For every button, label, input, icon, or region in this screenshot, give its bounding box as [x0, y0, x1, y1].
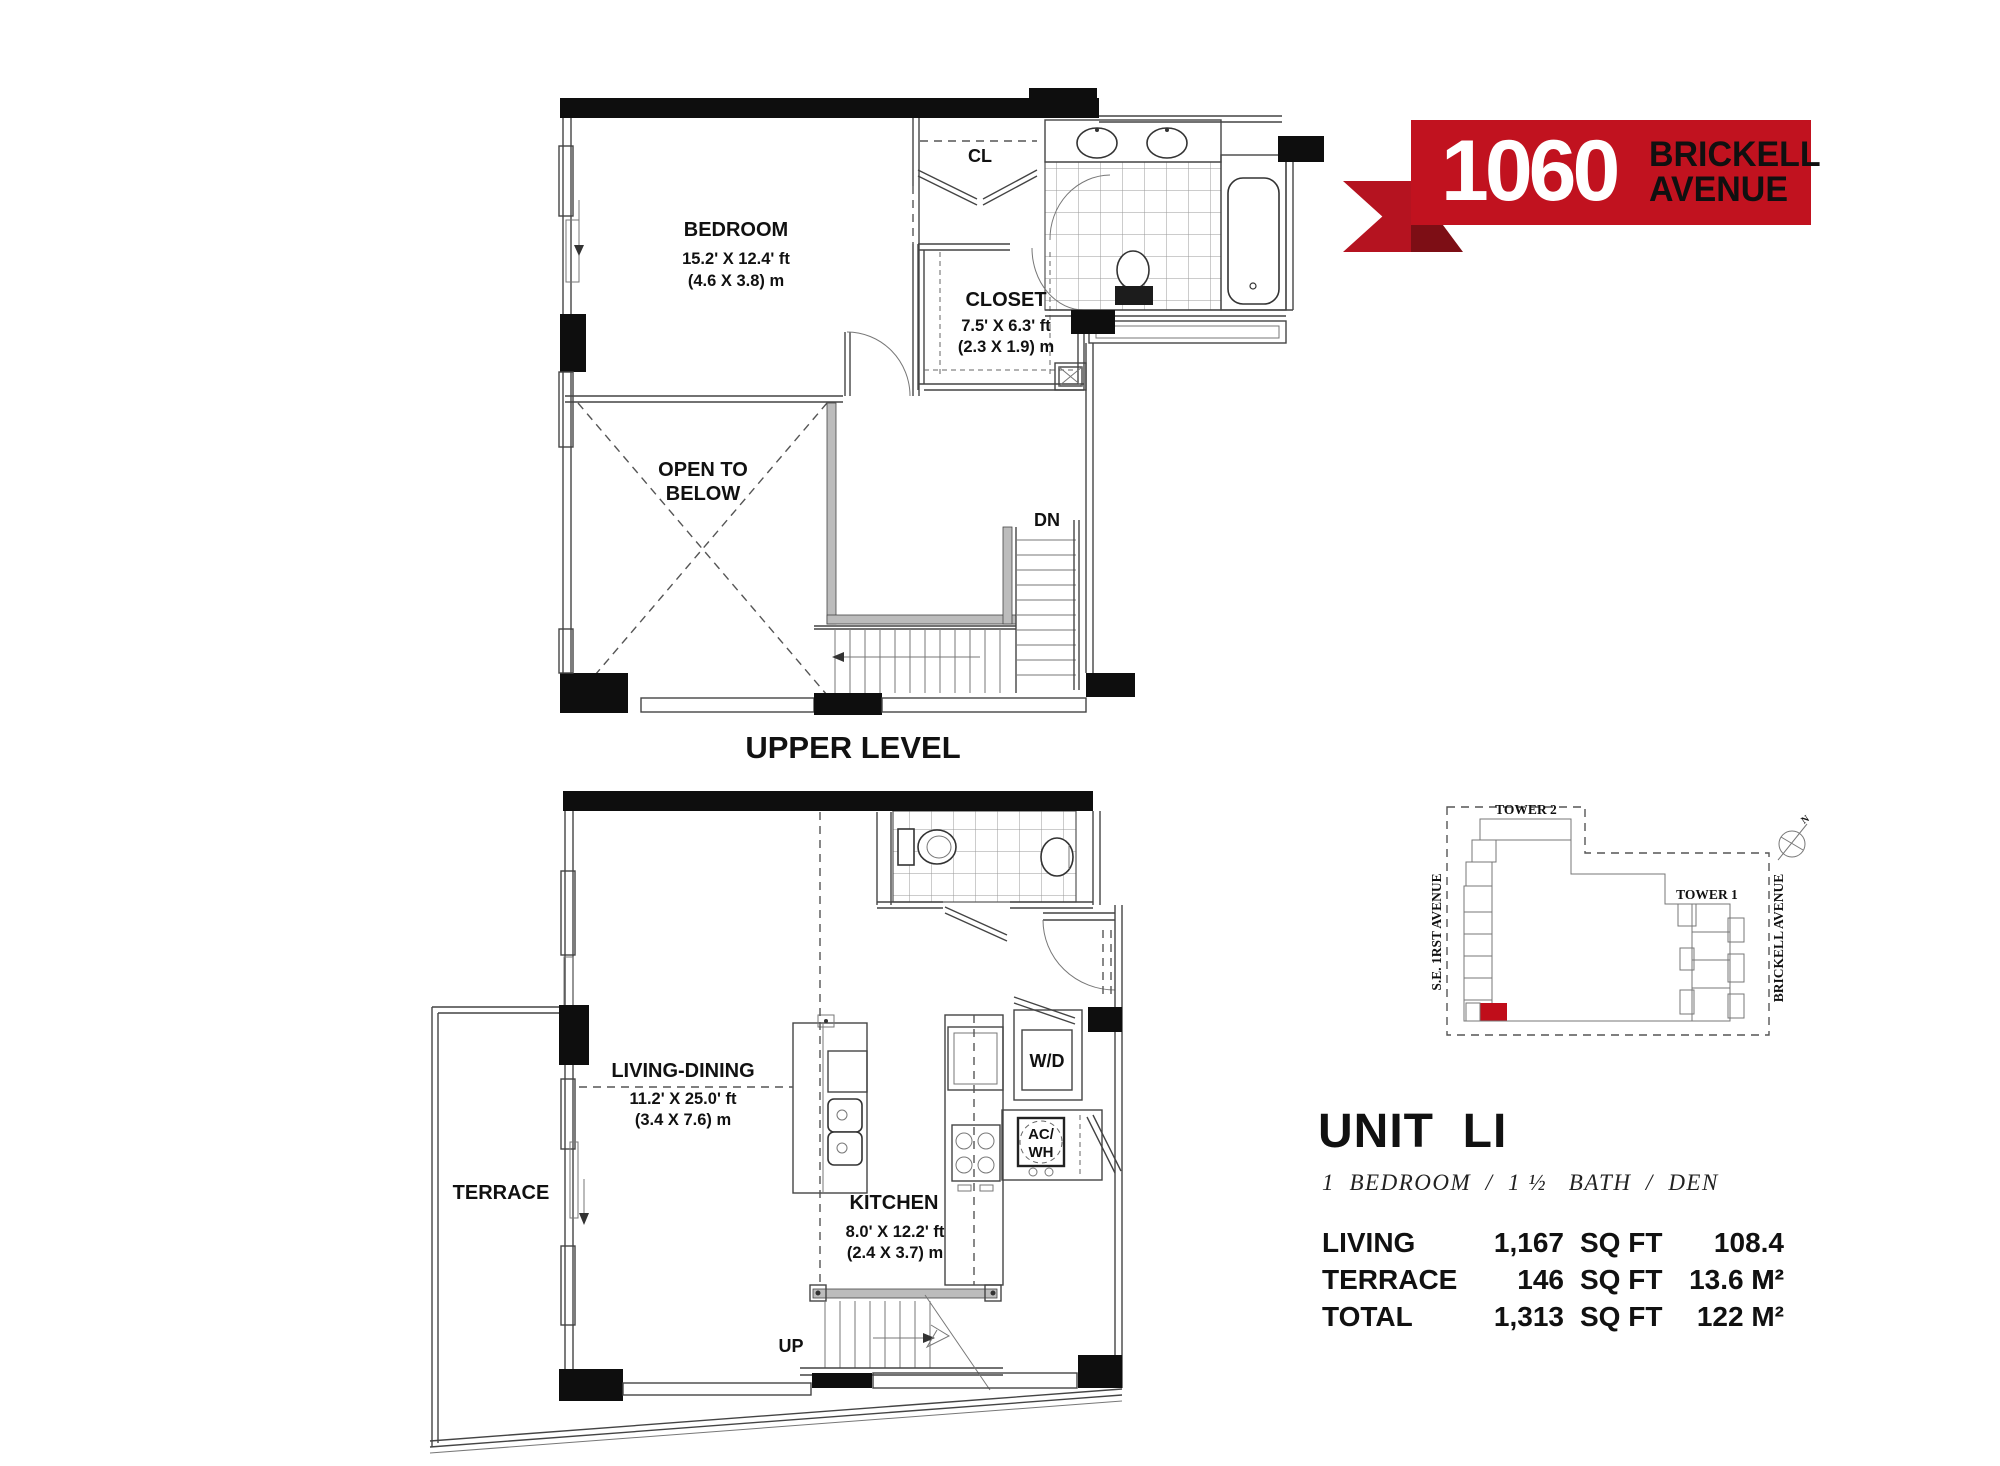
bedroom-door-arc	[847, 332, 910, 396]
terrace-label: TERRACE	[453, 1182, 550, 1204]
stat-sqft-unit: SQ FT	[1564, 1261, 1676, 1298]
sink-icon	[1077, 128, 1117, 158]
stat-sqft: 1,167	[1484, 1224, 1564, 1261]
property-boundary	[1447, 807, 1769, 1035]
toilet-icon	[898, 829, 956, 865]
unit-location-marker	[1480, 1003, 1507, 1021]
stat-sqft: 1,313	[1484, 1298, 1564, 1335]
bedroom-label: BEDROOM	[684, 219, 788, 241]
entry-door-arc	[1043, 920, 1115, 990]
open-to-below-x	[578, 403, 827, 695]
stat-label: TERRACE	[1322, 1261, 1484, 1298]
kitchen-dim-ft: 8.0' X 12.2' ft	[846, 1223, 945, 1241]
logo-1060-brickell: 1060 BRICKELL AVENUE	[1343, 112, 1811, 254]
area-stats-table: LIVING 1,167 SQ FT 108.4 M² TERRACE 146 …	[1322, 1224, 1784, 1335]
closet-dim-ft: 7.5' X 6.3' ft	[961, 317, 1051, 335]
washer-dryer-closet	[1014, 997, 1082, 1100]
kitchen-island	[793, 1015, 867, 1193]
stat-sqft-unit: SQ FT	[1564, 1298, 1676, 1335]
entry-door-leaf	[1043, 913, 1115, 920]
elevator-icon	[1055, 363, 1086, 390]
wd-label: W/D	[1030, 1051, 1065, 1071]
logo-number: 1060	[1441, 120, 1616, 225]
ac-label-line1: AC/	[1028, 1126, 1055, 1143]
upper-level-plan: BEDROOM 15.2' X 12.4' ft (4.6 X 3.8) m C…	[550, 80, 1330, 780]
closet-label: CLOSET	[965, 289, 1046, 311]
ac-label-line2: WH	[1029, 1144, 1054, 1161]
bedroom-dim-ft: 15.2' X 12.4' ft	[682, 250, 790, 268]
kitchen-dim-m: (2.4 X 3.7) m	[847, 1244, 943, 1262]
powder-door	[945, 907, 1007, 941]
stat-m2: 122 M²	[1676, 1298, 1784, 1335]
tower2-footprint	[1464, 819, 1692, 1021]
living-label: LIVING-DINING	[611, 1060, 754, 1082]
logo-ribbon-tail	[1343, 181, 1412, 252]
stat-label: TOTAL	[1322, 1298, 1484, 1335]
logo-banner: 1060 BRICKELL AVENUE	[1411, 120, 1811, 225]
unit-subtitle: 1 BEDROOM / 1 ½ BATH / DEN	[1322, 1170, 1719, 1196]
cl-label: CL	[968, 146, 992, 166]
bathtub-icon	[1228, 178, 1279, 304]
stat-sqft: 146	[1484, 1261, 1564, 1298]
street-right-label: BRICKELL AVENUE	[1771, 874, 1786, 1002]
door-swing-arrow	[579, 1213, 589, 1225]
site-key-plan: N TOWER 2 TOWER 1 S.E. 1RST AVENUE BRICK…	[1430, 780, 1830, 1080]
kitchen-label: KITCHEN	[850, 1192, 939, 1214]
logo-name: BRICKELL AVENUE	[1649, 137, 1821, 207]
kitchen-counter	[945, 1015, 1003, 1285]
sink-icon	[1147, 128, 1187, 158]
terrace-outline	[430, 1007, 1122, 1453]
stair-direction-arrow	[832, 652, 844, 662]
sink-icon	[1041, 838, 1073, 876]
sliding-door-panel	[570, 1142, 578, 1218]
upper-level-title: UPPER LEVEL	[745, 730, 960, 765]
tower1-footprint	[1678, 904, 1744, 1021]
cl-doors	[918, 170, 1037, 205]
stair-rail	[827, 403, 836, 624]
closet-dim-m: (2.3 X 1.9) m	[958, 338, 1054, 356]
open-below-line2: BELOW	[666, 483, 741, 505]
tower2-label: TOWER 2	[1495, 802, 1557, 817]
stat-sqft-unit: SQ FT	[1564, 1224, 1676, 1261]
toilet-tank	[1115, 286, 1153, 305]
table-row: TOTAL 1,313 SQ FT 122 M²	[1322, 1298, 1784, 1335]
stairs-up-label: UP	[778, 1336, 803, 1356]
logo-name-line2: AVENUE	[1649, 172, 1821, 207]
table-row: TERRACE 146 SQ FT 13.6 M²	[1322, 1261, 1784, 1298]
stat-m2: 108.4 M²	[1676, 1224, 1784, 1261]
ac-water-heater-closet	[1002, 1110, 1121, 1180]
vanity-counter	[1045, 120, 1221, 162]
unit-title: UNIT LI	[1318, 1104, 1507, 1159]
door-swing-arrow	[574, 245, 584, 256]
logo-name-line1: BRICKELL	[1649, 137, 1821, 172]
stat-label: LIVING	[1322, 1224, 1484, 1261]
open-below-line1: OPEN TO	[658, 459, 748, 481]
north-label: N	[1799, 813, 1812, 827]
floorplan-sheet: BEDROOM 15.2' X 12.4' ft (4.6 X 3.8) m C…	[0, 0, 2000, 1466]
living-dim-ft: 11.2' X 25.0' ft	[630, 1090, 737, 1108]
north-arrow-icon: N	[1778, 813, 1812, 860]
stair-treads	[835, 629, 1000, 693]
living-dim-m: (3.4 X 7.6) m	[635, 1111, 731, 1129]
tower1-label: TOWER 1	[1676, 887, 1738, 902]
bedroom-dim-m: (4.6 X 3.8) m	[688, 272, 784, 290]
toilet-icon	[1117, 251, 1149, 289]
lower-level-plan: TERRACE LIVING-DINING 11.2' X 25.0' ft (…	[425, 785, 1125, 1466]
stat-m2: 13.6 M²	[1676, 1261, 1784, 1298]
table-row: LIVING 1,167 SQ FT 108.4 M²	[1322, 1224, 1784, 1261]
street-left-label: S.E. 1RST AVENUE	[1430, 873, 1444, 990]
stairs-dn-label: DN	[1034, 510, 1060, 530]
